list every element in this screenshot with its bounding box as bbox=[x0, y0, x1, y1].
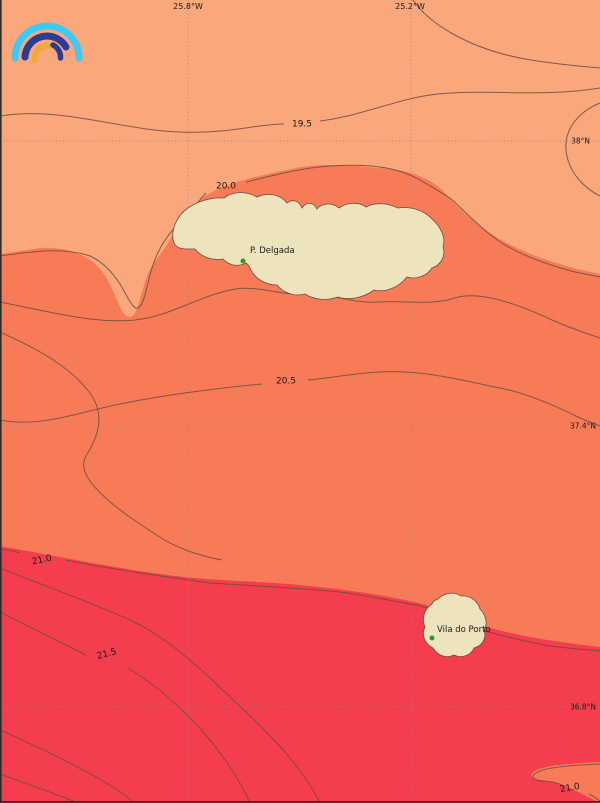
place-label-vila-do-porto: Vila do Porto bbox=[437, 626, 491, 635]
rainbow-arcs-logo bbox=[9, 13, 87, 63]
isotherm-label-20-5: 20.5 bbox=[276, 378, 296, 387]
axis-label-lon-1: 25.8°W bbox=[173, 3, 203, 11]
place-dot-vila-do-porto bbox=[430, 636, 435, 641]
axis-label-lat-1: 38°N bbox=[571, 137, 590, 145]
logo-arc-yellow bbox=[35, 46, 49, 61]
isotherm-label-19-5: 19.5 bbox=[292, 121, 312, 130]
sst-map: 25.8°W 25.2°W 38°N 37.4°N 36.8°N 19.5 20… bbox=[0, 0, 600, 803]
axis-label-lon-2: 25.2°W bbox=[395, 3, 425, 11]
logo-arc-navy-small bbox=[53, 45, 61, 58]
place-dot-p-delgada bbox=[241, 259, 246, 264]
isotherm-label-20-0: 20.0 bbox=[216, 183, 236, 192]
axis-label-lat-2: 37.4°N bbox=[570, 422, 596, 430]
axis-label-lat-3: 36.8°N bbox=[570, 703, 596, 711]
place-label-p-delgada: P. Delgada bbox=[250, 247, 295, 256]
